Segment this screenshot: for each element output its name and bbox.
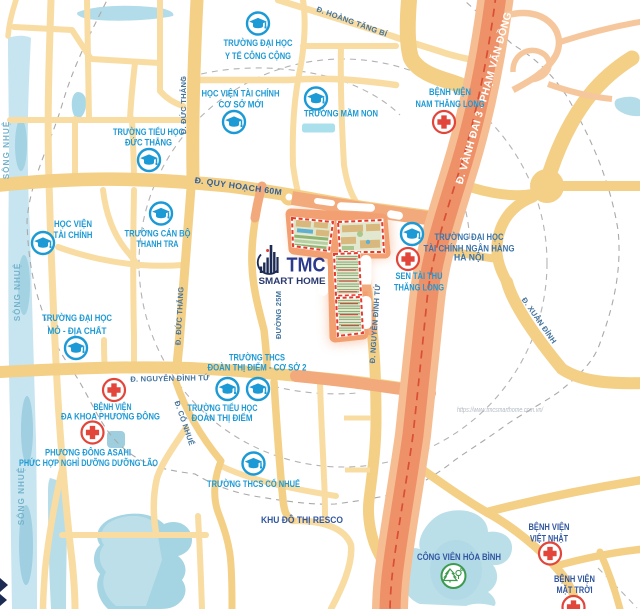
svg-text:SÔNG NHUỆ: SÔNG NHUỆ <box>11 263 22 322</box>
svg-text:Đ. ĐỨC THẮNG: Đ. ĐỨC THẮNG <box>179 76 188 134</box>
svg-text:ĐOÀN THỊ ĐIỂM - CƠ SỞ 2: ĐOÀN THỊ ĐIỂM - CƠ SỞ 2 <box>208 362 307 373</box>
svg-text:SMART HOME: SMART HOME <box>259 276 326 287</box>
svg-text:MẶT TRỜI: MẶT TRỜI <box>557 584 593 595</box>
svg-text:TRƯỜNG THCS CỔ NHUẾ: TRƯỜNG THCS CỔ NHUẾ <box>207 478 300 489</box>
svg-text:ĐƯỜNG 25M: ĐƯỜNG 25M <box>274 291 283 339</box>
svg-text:BỆNH VIỆN: BỆNH VIỆN <box>554 573 595 584</box>
svg-text:TMC: TMC <box>287 255 326 277</box>
svg-text:SÔNG NHUỆ: SÔNG NHUỆ <box>0 121 11 180</box>
svg-text:KHU ĐÔ THỊ RESCO: KHU ĐÔ THỊ RESCO <box>261 514 343 525</box>
svg-text:TRƯỜNG ĐẠI HỌC: TRƯỜNG ĐẠI HỌC <box>42 312 112 323</box>
svg-text:ĐOÀN THỊ ĐIỂM: ĐOÀN THỊ ĐIỂM <box>192 412 253 423</box>
svg-text:https://www.tmcsmarthome.com.v: https://www.tmcsmarthome.com.vn/ <box>457 407 544 414</box>
svg-text:PHỨC HỢP NGHỈ DƯỠNG DƯỠNG LÃO: PHỨC HỢP NGHỈ DƯỠNG DƯỠNG LÃO <box>19 457 158 468</box>
svg-text:TRƯỜNG MẦM NON: TRƯỜNG MẦM NON <box>304 108 378 119</box>
svg-text:BỆNH VIỆN: BỆNH VIỆN <box>529 521 570 532</box>
svg-text:SEN TÀI THU: SEN TÀI THU <box>396 271 443 281</box>
svg-text:Y TẾ CÔNG CỘNG: Y TẾ CÔNG CỘNG <box>225 50 291 61</box>
svg-text:TRƯỜNG THCS: TRƯỜNG THCS <box>229 352 285 363</box>
svg-text:MỎ - ĐỊA CHẤT: MỎ - ĐỊA CHẤT <box>48 325 107 336</box>
svg-text:HÀ NỘI: HÀ NỘI <box>454 252 484 263</box>
svg-text:Đ. NGUYỄN ĐÌNH TỨ: Đ. NGUYỄN ĐÌNH TỨ <box>130 373 210 383</box>
svg-text:HỌC VIỆN: HỌC VIỆN <box>54 218 92 229</box>
svg-text:ĐA KHOA PHƯƠNG ĐÔNG: ĐA KHOA PHƯƠNG ĐÔNG <box>61 411 160 422</box>
svg-text:BỆNH VIỆN: BỆNH VIỆN <box>429 86 471 97</box>
svg-text:TRƯỜNG TIỂU HỌC: TRƯỜNG TIỂU HỌC <box>113 126 184 137</box>
svg-text:TRƯỜNG CÁN BỘ: TRƯỜNG CÁN BỘ <box>125 228 191 239</box>
svg-text:THĂNG LONG: THĂNG LONG <box>394 283 444 293</box>
svg-text:TRƯỜNG ĐẠI HỌC: TRƯỜNG ĐẠI HỌC <box>435 231 504 242</box>
svg-text:ĐỨC THẮNG: ĐỨC THẮNG <box>125 137 172 148</box>
svg-text:TRƯỜNG ĐẠI HỌC: TRƯỜNG ĐẠI HỌC <box>224 37 293 48</box>
svg-text:SÔNG NHUỆ: SÔNG NHUỆ <box>15 467 26 526</box>
svg-text:TRƯỜNG TIỂU HỌC: TRƯỜNG TIỂU HỌC <box>188 402 258 413</box>
svg-text:CƠ SỞ MỚI: CƠ SỞ MỚI <box>219 99 264 110</box>
svg-text:PHƯƠNG ĐÔNG ASAHI: PHƯƠNG ĐÔNG ASAHI <box>45 447 131 458</box>
svg-text:BỆNH VIỆN: BỆNH VIỆN <box>94 401 132 412</box>
svg-text:TÀI CHÍNH: TÀI CHÍNH <box>54 230 93 240</box>
svg-text:CÔNG VIÊN HÒA BÌNH: CÔNG VIÊN HÒA BÌNH <box>417 551 501 562</box>
svg-text:HỌC VIỆN TÀI CHÍNH: HỌC VIỆN TÀI CHÍNH <box>202 88 280 99</box>
svg-text:THANH TRA: THANH TRA <box>137 239 179 249</box>
svg-text:NAM THĂNG LONG: NAM THĂNG LONG <box>416 99 485 109</box>
